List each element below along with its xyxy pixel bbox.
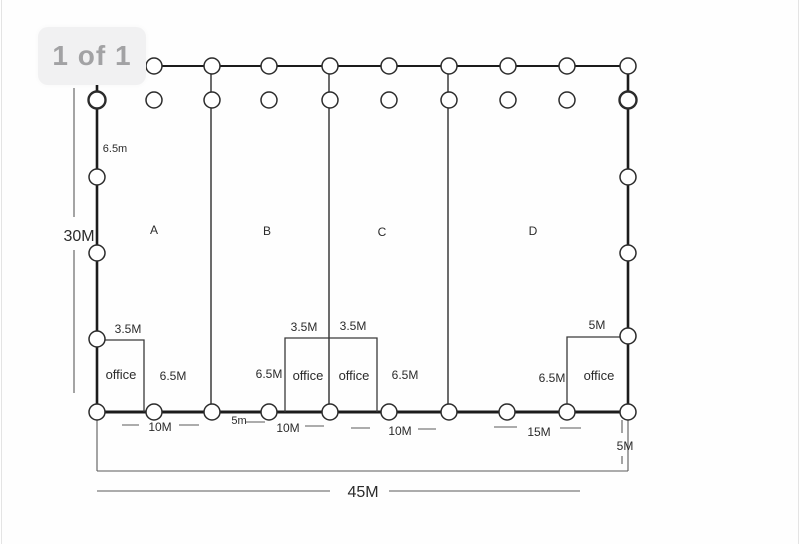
column-circle bbox=[89, 331, 105, 347]
column-circle bbox=[146, 92, 162, 108]
column-circle bbox=[441, 58, 457, 74]
page-count-badge: 1 of 1 bbox=[38, 27, 146, 85]
column-circle-bold bbox=[620, 92, 637, 109]
column-circle bbox=[322, 58, 338, 74]
column-circle bbox=[559, 58, 575, 74]
office-1-label: office bbox=[106, 367, 137, 382]
document-viewer: A B C D 30M 45M 6.5m 5M 3.5M office 6.5M… bbox=[1, 0, 799, 544]
column-circle bbox=[559, 404, 575, 420]
column-circle bbox=[204, 404, 220, 420]
column-circle bbox=[204, 92, 220, 108]
office-2-depth-label: 6.5M bbox=[256, 367, 283, 381]
office-1-width-label: 3.5M bbox=[115, 322, 142, 336]
column-circle bbox=[620, 328, 636, 344]
dim-45m-label: 45M bbox=[347, 484, 378, 501]
column-circle-bold bbox=[89, 92, 106, 109]
column-circle bbox=[261, 58, 277, 74]
office-2-width-label: 3.5M bbox=[291, 320, 318, 334]
office-1-depth-label: 6.5M bbox=[160, 369, 187, 383]
office-4-label: office bbox=[584, 368, 615, 383]
bottom-dim-5m: 5m bbox=[231, 415, 246, 427]
column-circle bbox=[381, 58, 397, 74]
office-3-label: office bbox=[339, 368, 370, 383]
section-d-label: D bbox=[529, 224, 538, 238]
plan-labels: A B C D 30M 45M 6.5m 5M 3.5M office 6.5M… bbox=[63, 143, 633, 501]
column-circle bbox=[89, 404, 105, 420]
dim-30m-label: 30M bbox=[63, 228, 94, 245]
column-circle bbox=[89, 245, 105, 261]
column-circle bbox=[146, 404, 162, 420]
column-circle bbox=[620, 169, 636, 185]
bottom-dim-10m-2: 10M bbox=[276, 421, 299, 435]
column-markers bbox=[89, 58, 637, 420]
bottom-dim-15m: 15M bbox=[527, 425, 550, 439]
column-circle bbox=[381, 404, 397, 420]
bottom-dim-10m-1: 10M bbox=[148, 420, 171, 434]
column-circle bbox=[499, 404, 515, 420]
column-circle bbox=[89, 169, 105, 185]
office-2-label: office bbox=[293, 368, 324, 383]
column-circle bbox=[322, 92, 338, 108]
building-outline bbox=[97, 66, 628, 412]
bay-dividers bbox=[211, 66, 448, 412]
column-circle bbox=[261, 404, 277, 420]
section-c-label: C bbox=[378, 225, 387, 239]
page-count-label: 1 of 1 bbox=[52, 40, 131, 72]
section-b-label: B bbox=[263, 224, 271, 238]
office-4-width-label: 5M bbox=[589, 318, 606, 332]
column-circle bbox=[146, 58, 162, 74]
bottom-dim-10m-3: 10M bbox=[388, 424, 411, 438]
column-circle bbox=[620, 404, 636, 420]
office-3-depth-label: 6.5M bbox=[392, 368, 419, 382]
column-circle bbox=[559, 92, 575, 108]
column-circle bbox=[441, 92, 457, 108]
column-circle bbox=[441, 404, 457, 420]
column-circle bbox=[500, 92, 516, 108]
column-circle bbox=[261, 92, 277, 108]
column-circle bbox=[381, 92, 397, 108]
column-circle bbox=[204, 58, 220, 74]
column-circle bbox=[620, 58, 636, 74]
dim-bay-6-5m-label: 6.5m bbox=[103, 143, 127, 155]
office-4-depth-label: 6.5M bbox=[539, 371, 566, 385]
office-3-width-label: 3.5M bbox=[340, 319, 367, 333]
dim-corner-5m-label: 5M bbox=[617, 439, 634, 453]
column-circle bbox=[322, 404, 338, 420]
section-a-label: A bbox=[150, 223, 158, 237]
column-circle bbox=[500, 58, 516, 74]
column-circle bbox=[620, 245, 636, 261]
